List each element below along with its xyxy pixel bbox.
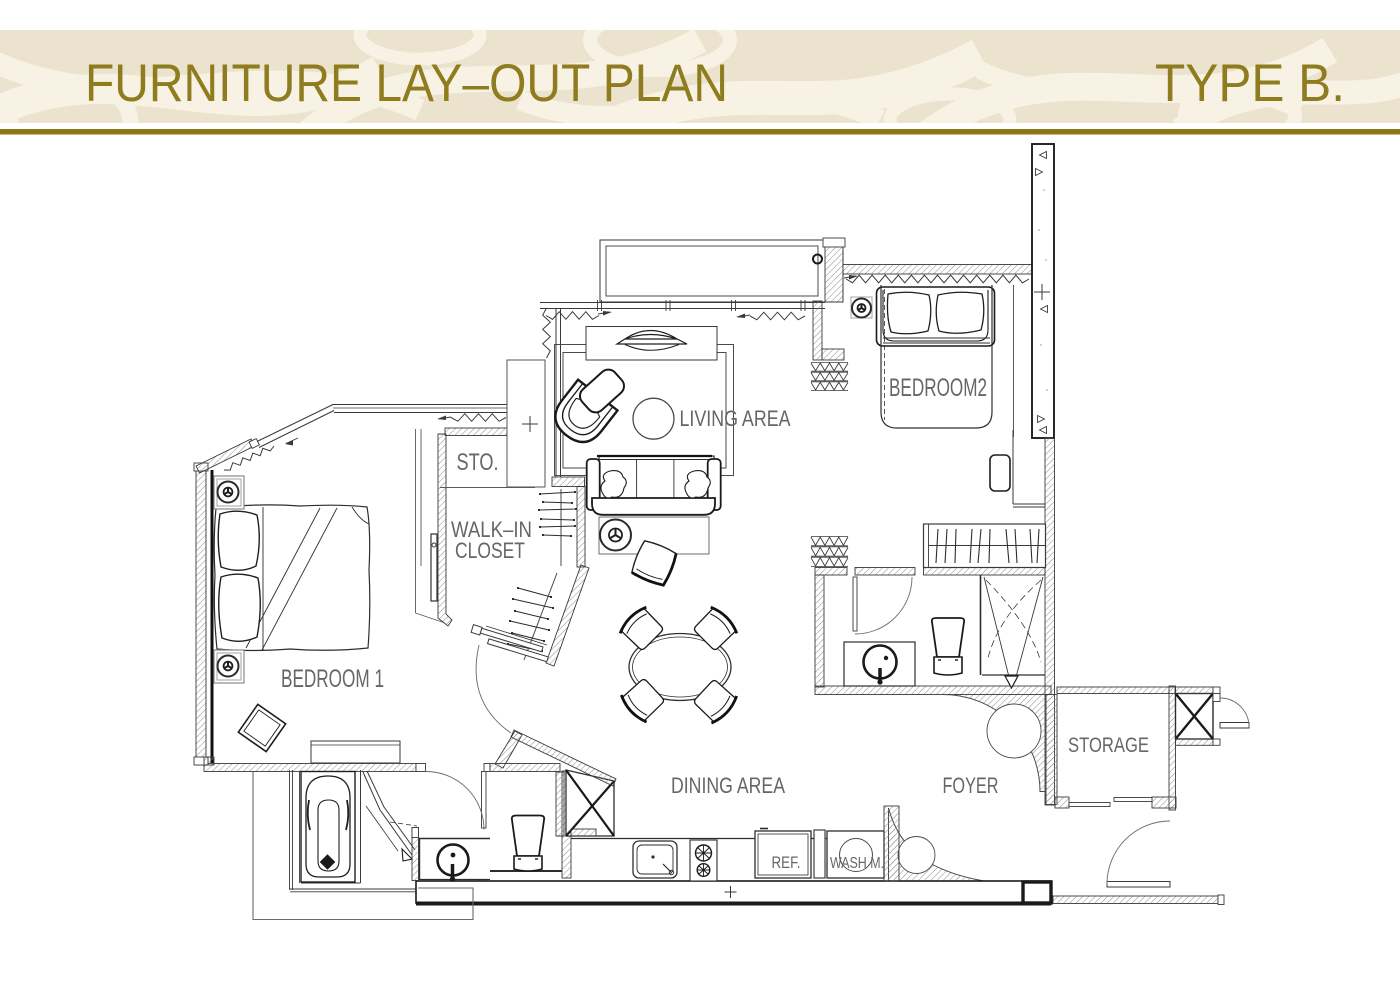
svg-text:BEDROOM2: BEDROOM2 (889, 374, 987, 402)
svg-text:BEDROOM 1: BEDROOM 1 (281, 665, 384, 693)
svg-text:LIVING AREA: LIVING AREA (680, 406, 791, 431)
svg-text:TYPE B.: TYPE B. (1155, 54, 1345, 113)
svg-text:WASH M.: WASH M. (830, 855, 884, 872)
svg-text:DINING AREA: DINING AREA (671, 773, 785, 798)
svg-text:FURNITURE LAY–OUT PLAN: FURNITURE LAY–OUT PLAN (85, 54, 728, 113)
svg-text:FOYER: FOYER (943, 773, 999, 798)
svg-text:CLOSET: CLOSET (455, 538, 525, 563)
svg-text:REF.: REF. (772, 853, 801, 872)
svg-text:STO.: STO. (457, 449, 499, 476)
svg-text:STORAGE: STORAGE (1068, 734, 1149, 757)
